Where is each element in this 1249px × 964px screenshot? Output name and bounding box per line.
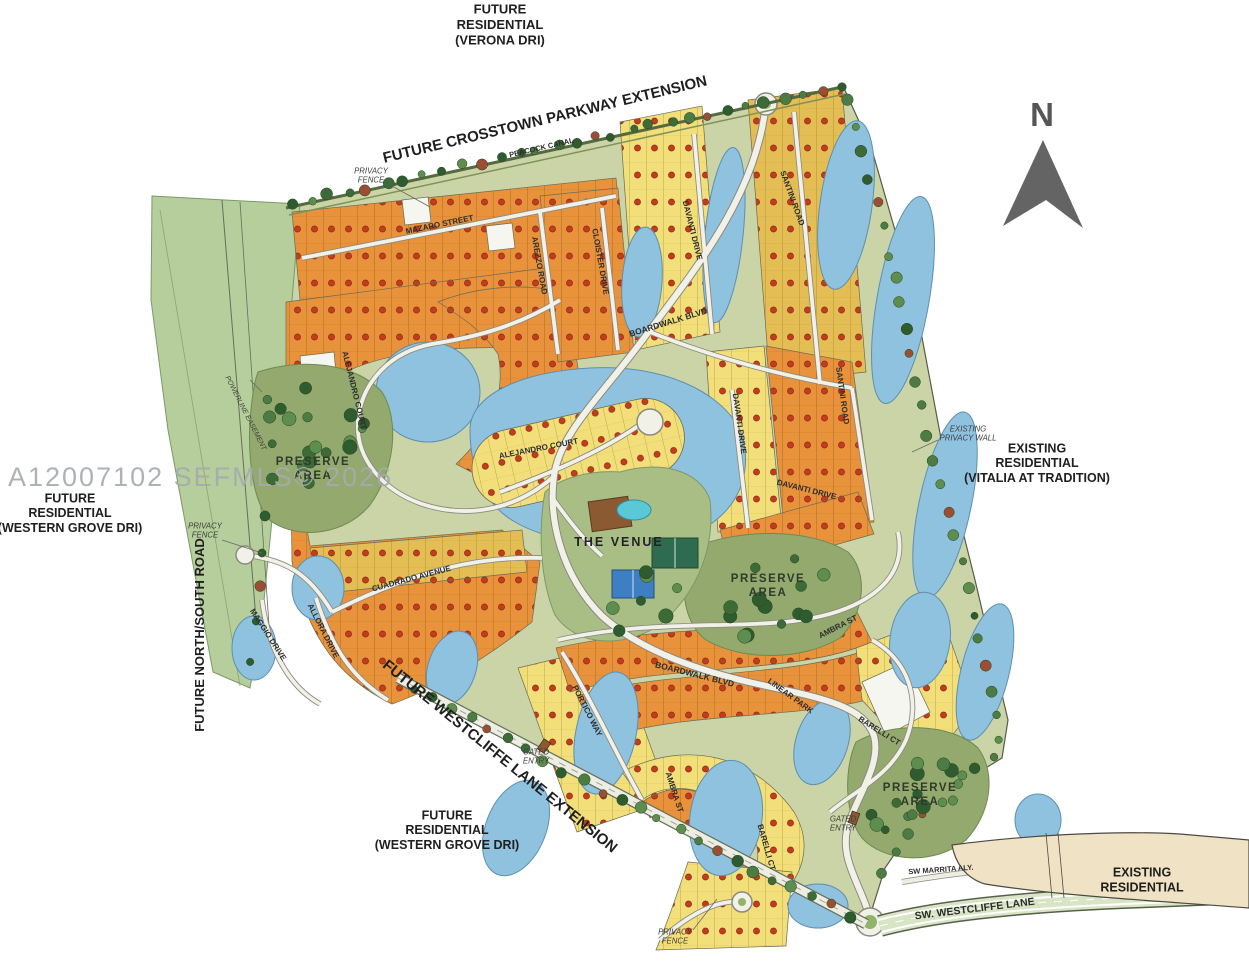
tree (659, 609, 674, 624)
tree (881, 826, 889, 834)
tree (936, 480, 945, 489)
tree (359, 185, 370, 196)
tree (777, 620, 786, 629)
tree (703, 113, 711, 121)
tree (855, 145, 867, 157)
tree (268, 440, 276, 448)
tree (944, 507, 954, 517)
tree (255, 581, 266, 592)
tree (874, 197, 883, 206)
tree (684, 112, 695, 123)
tree (986, 686, 997, 697)
north-arrow-glyph (1003, 140, 1083, 228)
tree (903, 829, 914, 840)
label-existing-residential-vitalia: EXISTINGRESIDENTIAL(VITALIA AT TRADITION… (964, 441, 1110, 485)
tree (907, 810, 917, 820)
tree (309, 441, 322, 454)
tree (747, 866, 759, 878)
tree (246, 658, 253, 665)
tree (808, 892, 817, 901)
tree (613, 625, 625, 637)
tree (990, 753, 998, 761)
tree (742, 102, 749, 109)
label-gated-entry-west: GATEDENTRY (523, 747, 550, 765)
tree (713, 846, 723, 856)
tree (948, 796, 957, 805)
tree (606, 602, 619, 615)
label-gated-entry-east: GATEDENTRY (830, 814, 857, 832)
tree (757, 97, 769, 109)
label-privacy-fence-top: PRIVACYFENCE (354, 166, 389, 184)
tree (732, 855, 744, 867)
site-plan-map: FUTURERESIDENTIAL(VERONA DRI)FUTURE CROS… (0, 0, 1249, 964)
tree (260, 511, 270, 521)
tree (750, 563, 760, 573)
tree (921, 430, 932, 441)
tree (695, 837, 703, 845)
tree (303, 412, 313, 422)
tree (838, 83, 847, 92)
tree (892, 848, 900, 856)
tree (282, 412, 296, 426)
tree (817, 568, 830, 581)
tree (780, 93, 792, 105)
tree (437, 167, 445, 175)
tree (993, 711, 1001, 719)
tree (476, 159, 487, 170)
tree (768, 877, 776, 885)
tree (643, 119, 653, 129)
tree (959, 558, 966, 565)
tree (652, 814, 659, 821)
label-privacy-fence-left: PRIVACYFENCE (188, 521, 223, 539)
tree (309, 197, 317, 205)
tree (723, 105, 733, 115)
tree (346, 189, 354, 197)
tree (321, 188, 333, 200)
tree (669, 118, 678, 127)
white-lots (486, 223, 515, 251)
tree (917, 401, 926, 410)
tree (418, 171, 425, 178)
tree (275, 403, 286, 414)
tree (635, 802, 647, 814)
tree (881, 222, 888, 229)
tree (938, 798, 947, 807)
tree (300, 382, 312, 394)
tree (724, 601, 738, 615)
label-privacy-fence-bottom: PRIVACYFENCE (658, 927, 693, 945)
tree (963, 582, 974, 593)
watermark-text: A12007102 SEFMLS© 2026 (8, 462, 393, 492)
tree (799, 91, 806, 98)
tree (672, 583, 681, 592)
label-future-residential-verona: FUTURERESIDENTIAL(VERONA DRI) (455, 2, 545, 48)
tree (497, 153, 506, 162)
tree (852, 123, 859, 130)
tree (911, 757, 924, 770)
tree (263, 411, 275, 423)
tree (980, 660, 991, 671)
tree (876, 868, 886, 878)
white-lots (402, 197, 431, 225)
tree (894, 297, 905, 308)
tree (631, 125, 638, 132)
culdesac-alejandro (637, 409, 663, 435)
north-arrow-letter: N (1030, 96, 1054, 133)
site-plan-page: FUTURERESIDENTIAL(VERONA DRI)FUTURE CROS… (0, 0, 1249, 964)
venue-pool (617, 500, 651, 520)
tree (677, 824, 687, 834)
tree (862, 175, 872, 185)
tree (263, 395, 272, 404)
tree (910, 377, 921, 388)
label-future-north-south-road: FUTURE NORTH/SOUTH ROAD (192, 538, 207, 732)
tree (457, 159, 467, 169)
culdesac-west (236, 546, 254, 564)
tree (973, 634, 982, 643)
label-the-venue: THE VENUE (574, 535, 664, 549)
tree (971, 612, 978, 619)
tree (905, 349, 913, 357)
north-arrow (1003, 140, 1083, 228)
label-future-residential-western-grove-left: FUTURERESIDENTIAL(WESTERN GROVE DRI) (0, 491, 142, 535)
tree (738, 629, 752, 643)
tree (599, 790, 607, 798)
tree (901, 323, 913, 335)
tree (503, 733, 513, 743)
tree (383, 178, 394, 189)
tree (639, 566, 652, 579)
tree (579, 774, 591, 786)
tree (636, 596, 645, 605)
tree (790, 555, 799, 564)
tree (995, 736, 1002, 743)
tree (827, 899, 836, 908)
tree (591, 132, 599, 140)
tree (785, 881, 797, 893)
tree (948, 530, 959, 541)
tree (958, 771, 967, 780)
tree (885, 253, 893, 261)
tree (606, 133, 614, 141)
tree (397, 176, 408, 187)
tree (556, 768, 567, 779)
tree (617, 794, 628, 805)
tree (845, 912, 857, 924)
tree (927, 455, 938, 466)
tree (800, 610, 813, 623)
tree (969, 763, 980, 774)
tree (937, 758, 950, 771)
tree (891, 272, 902, 283)
tree (343, 440, 358, 455)
tree (842, 94, 854, 106)
tree (287, 199, 297, 209)
tree (819, 87, 828, 96)
